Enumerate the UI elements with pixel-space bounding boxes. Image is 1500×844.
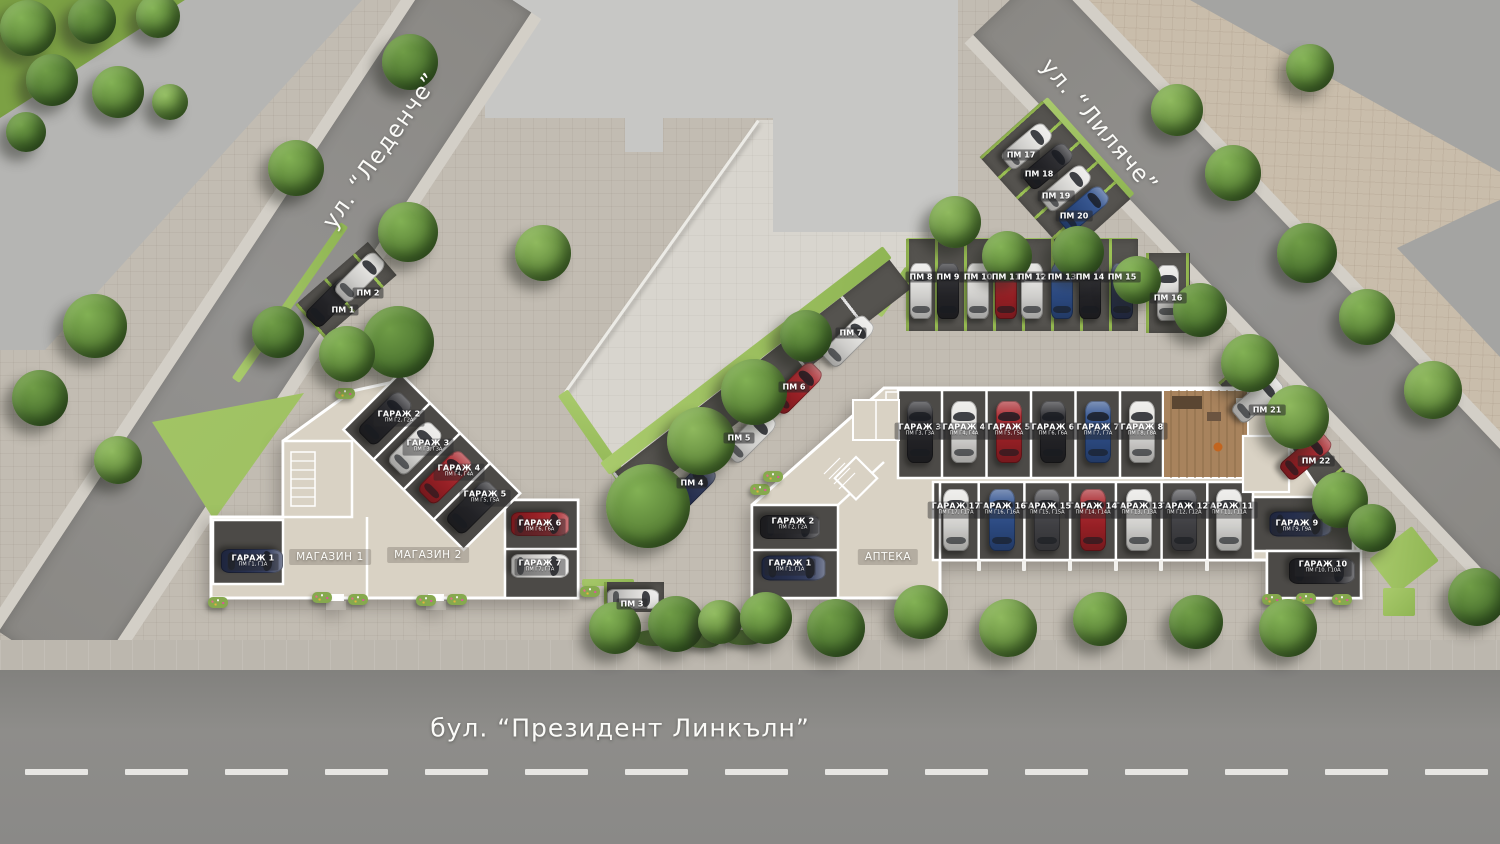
tree <box>1205 145 1261 201</box>
car <box>1034 489 1060 551</box>
bay-marking <box>1068 560 1072 571</box>
flower-bed <box>763 471 783 482</box>
tree <box>780 310 832 362</box>
tree <box>362 306 434 378</box>
parking-spot-label: ПМ 15 <box>1104 272 1141 283</box>
car <box>1171 489 1197 551</box>
garage-label: ГАРАЖ 17ПМ Г17, Г17А <box>928 502 985 519</box>
parking-spot-label: ПМ 18 <box>1021 169 1058 180</box>
pharmacy-label: АПТЕКА <box>858 549 918 565</box>
tree <box>1259 599 1317 657</box>
flower-bed <box>750 484 770 495</box>
tree <box>319 326 375 382</box>
tree <box>1151 84 1203 136</box>
tree <box>1173 283 1227 337</box>
bay-marking <box>1114 560 1118 571</box>
parking-spot-label: ПМ 17 <box>1003 150 1040 161</box>
garage-label: ГАРАЖ 2ПМ Г2, Г2А <box>374 410 425 427</box>
tree <box>63 294 127 358</box>
tree <box>152 84 188 120</box>
tree <box>589 602 641 654</box>
garage-label: ГАРАЖ 10ПМ Г10, Г10А <box>1295 560 1352 577</box>
bay-marking <box>1159 560 1163 571</box>
shop2-label: МАГАЗИН 2 <box>387 547 469 563</box>
parking-spot-label: ПМ 22 <box>1298 456 1335 467</box>
shop1-label: МАГАЗИН 1 <box>289 549 371 565</box>
parking-spot-label: ПМ 4 <box>676 478 707 489</box>
tree <box>6 112 46 152</box>
tree <box>378 202 438 262</box>
tree <box>807 599 865 657</box>
tree <box>252 306 304 358</box>
tree <box>894 585 948 639</box>
tree <box>1265 385 1329 449</box>
garage-label: ГАРАЖ 6ПМ Г6, Г6А <box>515 519 566 536</box>
garage-label: ГАРАЖ 4ПМ Г4, Г4А <box>939 423 990 440</box>
garage-label: ГАРАЖ 7ПМ Г7, Г7А <box>515 559 566 576</box>
parking-spot-label: ПМ 19 <box>1038 191 1075 202</box>
garage-label: ГАРАЖ 5ПМ Г5, Г5А <box>460 490 511 507</box>
tree <box>721 359 787 425</box>
tree <box>26 54 78 106</box>
bay-marking <box>1022 560 1026 571</box>
tree <box>979 599 1037 657</box>
car <box>943 489 969 551</box>
tree <box>94 436 142 484</box>
garage-label: ГАРАЖ 1ПМ Г1, Г1А <box>228 554 279 571</box>
tree <box>698 600 742 644</box>
flower-bed <box>580 586 600 597</box>
tree <box>0 0 56 56</box>
tree <box>1448 568 1500 626</box>
tree <box>648 596 704 652</box>
tree <box>1052 226 1104 278</box>
parking-spot-label: ПМ 16 <box>1150 293 1187 304</box>
garage-label: ГАРАЖ 9ПМ Г9, Г9А <box>1272 519 1323 536</box>
tree <box>1348 504 1396 552</box>
garage-label: ГАРАЖ 3ПМ Г3, Г3А <box>403 439 454 456</box>
garage-label: ГАРАЖ 6ПМ Г6, Г6А <box>1028 423 1079 440</box>
site-plan: ГАРАЖ 1ПМ Г1, Г1АГАРАЖ 2ПМ Г2, Г2АГАРАЖ … <box>0 0 1500 844</box>
tree <box>740 592 792 644</box>
tree <box>1277 223 1337 283</box>
parking-spot-label: ПМ 21 <box>1249 405 1286 416</box>
car <box>1216 489 1242 551</box>
parking-spot-label: ПМ 3 <box>616 599 647 610</box>
tree <box>515 225 571 281</box>
tree <box>1404 361 1462 419</box>
parking-spot-label: ПМ 20 <box>1056 211 1093 222</box>
tree <box>12 370 68 426</box>
garage-label: ГАРАЖ 1ПМ Г1, Г1А <box>765 559 816 576</box>
garage-label: ГАРАЖ 8ПМ Г8, Г8А <box>1117 423 1168 440</box>
parking-spot-label: ПМ 1 <box>327 305 358 316</box>
tree <box>1169 595 1223 649</box>
flower-bed <box>348 594 368 605</box>
tree <box>1073 592 1127 646</box>
car <box>989 489 1015 551</box>
tree <box>929 196 981 248</box>
flower-bed <box>1332 594 1352 605</box>
tree <box>92 66 144 118</box>
tree <box>1221 334 1279 392</box>
parking-spot-label: ПМ 5 <box>723 433 754 444</box>
flower-bed <box>447 594 467 605</box>
tree <box>1286 44 1334 92</box>
garage-label: ГАРАЖ 2ПМ Г2, Г2А <box>768 517 819 534</box>
bay-marking <box>1205 560 1209 571</box>
flower-bed <box>335 388 355 399</box>
flower-bed <box>208 597 228 608</box>
car <box>1080 489 1106 551</box>
boulevard-label: бул. “Президент Линкълн” <box>430 714 810 743</box>
flower-bed <box>416 595 436 606</box>
flower-bed <box>312 592 332 603</box>
parking-spot-label: ПМ 2 <box>352 288 383 299</box>
parking-spot-label: ПМ 7 <box>835 328 866 339</box>
car <box>1126 489 1152 551</box>
bay-marking <box>977 560 981 571</box>
parking-spot-label: ПМ 6 <box>778 382 809 393</box>
tree <box>268 140 324 196</box>
tree <box>1339 289 1395 345</box>
garage-label: ГАРАЖ 4ПМ Г4, Г4А <box>434 464 485 481</box>
